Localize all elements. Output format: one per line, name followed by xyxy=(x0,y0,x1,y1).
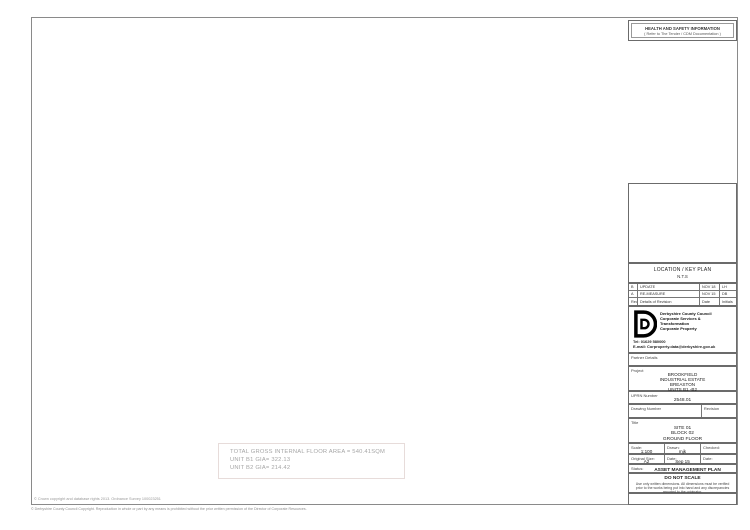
revision-table: B UPDATE NOV 18 LH A RE-MEASURE NOV 15 D… xyxy=(628,283,737,306)
revision-header-details: Details of Revision xyxy=(638,298,700,305)
drawing-number-label: Drawing Number xyxy=(631,406,661,411)
revision-row: B UPDATE NOV 18 LH xyxy=(629,284,736,291)
scale-row: Scale: 1:100 Drawn: mjk Checked: xyxy=(628,443,737,454)
location-scale: N.T.S xyxy=(677,274,688,279)
revision-header-date: Date xyxy=(700,298,720,305)
location-key-plan: LOCATION / KEY PLAN N.T.S xyxy=(628,263,737,283)
project-box: Project BROOKFIELD INDUSTRIAL ESTATE BRE… xyxy=(628,366,737,391)
revision-header-initials: Initials xyxy=(720,298,736,305)
location-title: LOCATION / KEY PLAN xyxy=(654,267,712,273)
health-safety-title: HEALTH AND SAFETY INFORMATION xyxy=(645,26,720,31)
revision-letter: A xyxy=(629,291,638,297)
sheet-border: HEALTH AND SAFETY INFORMATION ( Refer to… xyxy=(31,17,738,505)
revision-row: A RE-MEASURE NOV 15 DB xyxy=(629,291,736,298)
checked-label: Checked: xyxy=(703,445,720,450)
derbyshire-logo-icon xyxy=(633,310,657,338)
unit-b1-gia-text: UNIT B1 GIA= 322.13 xyxy=(230,456,404,464)
revision-details: RE-MEASURE xyxy=(638,291,700,297)
uprn-box: UPRN Number 2548.01 xyxy=(628,391,737,404)
revision-header-rev: Rev. xyxy=(629,298,638,305)
status-box: Status: ASSET MANAGEMENT PLAN xyxy=(628,464,737,473)
titleblock-empty-cell xyxy=(628,493,737,505)
revision-details: UPDATE xyxy=(638,284,700,290)
crown-copyright-text: © Crown copyright and database rights 20… xyxy=(34,497,161,501)
do-not-scale-box: DO NOT SCALE Use only written dimensions… xyxy=(628,473,737,493)
health-safety-box: HEALTH AND SAFETY INFORMATION ( Refer to… xyxy=(628,20,737,41)
uprn-value: 2548.01 xyxy=(629,398,736,403)
council-copyright-text: © Derbyshire County Council Copyright. R… xyxy=(31,507,307,511)
title-label: Title xyxy=(631,420,638,425)
health-safety-subtitle: ( Refer to The Tender / CDM Documentatio… xyxy=(644,32,721,36)
do-not-scale-note: Use only written dimensions. All dimensi… xyxy=(629,481,736,494)
org-dept3: Corporate Property xyxy=(660,326,712,331)
revision-label: Revision xyxy=(704,406,719,411)
total-area-text: TOTAL GROSS INTERNAL FLOOR AREA = 540.41… xyxy=(230,448,404,456)
revision-date: NOV 15 xyxy=(700,291,720,297)
key-plan-box xyxy=(628,183,737,263)
org-email: E-mail: Corproperty.data@derbyshire.gov.… xyxy=(633,344,715,349)
revision-date: NOV 18 xyxy=(700,284,720,290)
drawing-number-box: Drawing Number Revision xyxy=(628,404,737,418)
status-value: ASSET MANAGEMENT PLAN xyxy=(639,468,736,473)
scale-value: 1:100 xyxy=(629,449,664,454)
drawing-title-box: Title SITE 01 BLOCK 02 GROUND FLOOR xyxy=(628,418,737,443)
organisation-box: Derbyshire County Council Corporate Serv… xyxy=(628,306,737,353)
revision-header-row: Rev. Details of Revision Date Initials xyxy=(629,298,736,305)
unit-b2-gia-text: UNIT B2 GIA= 214.42 xyxy=(230,464,404,472)
partner-details-label: Partner Details xyxy=(631,355,657,360)
partner-details-box: Partner Details xyxy=(628,353,737,366)
title-line: GROUND FLOOR xyxy=(629,437,736,442)
date2-label: Date: xyxy=(703,456,713,461)
revision-letter: B xyxy=(629,284,638,290)
revision-initials: LH xyxy=(720,284,736,290)
drawn-value: mjk xyxy=(665,449,700,454)
size-date-row: Original Size: A2 Date: Sep 15 Date: xyxy=(628,454,737,464)
area-summary-box: TOTAL GROSS INTERNAL FLOOR AREA = 540.41… xyxy=(218,443,405,479)
drawing-page: UNIT B1 UNIT B2 011 WS 005 WS 017 OF 015… xyxy=(0,0,750,530)
revision-initials: DB xyxy=(720,291,736,297)
